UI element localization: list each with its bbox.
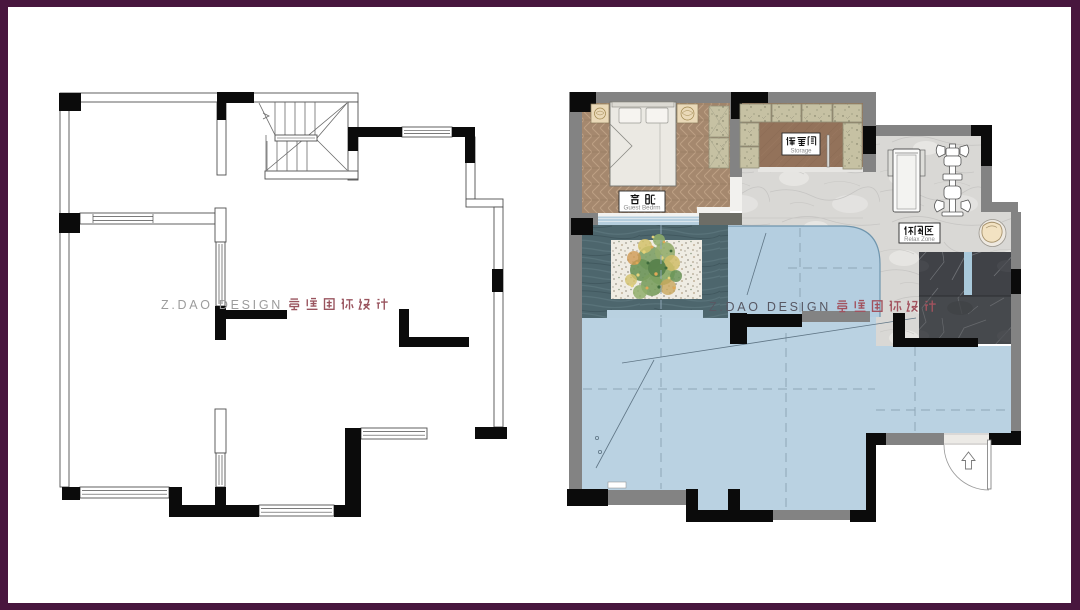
svg-text:Relax Zone: Relax Zone bbox=[904, 237, 935, 243]
svg-text:Z.DAO DESIGN: Z.DAO DESIGN bbox=[161, 298, 283, 312]
svg-text:Storage: Storage bbox=[790, 149, 812, 155]
svg-text:Z.DAO DESIGN: Z.DAO DESIGN bbox=[709, 300, 831, 314]
svg-text:Guest Bedrm: Guest Bedrm bbox=[623, 205, 660, 212]
